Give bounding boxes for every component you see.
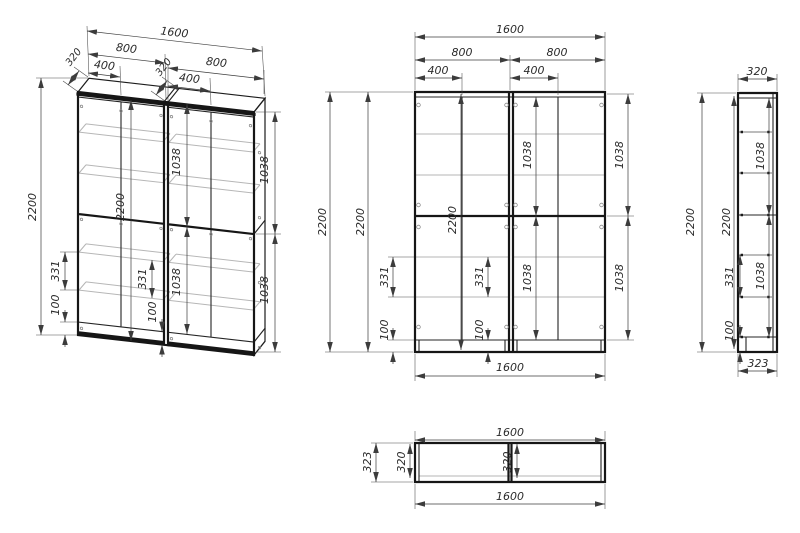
dim-label: 1600 xyxy=(496,361,524,374)
dim-label: 1038 xyxy=(170,268,183,296)
dim-label: 400 xyxy=(93,58,115,73)
dim-label: 320 xyxy=(395,452,408,473)
dim-label: 320 xyxy=(747,65,768,78)
dim-label: 800 xyxy=(115,41,137,56)
dim-label: 800 xyxy=(452,46,473,59)
dim-label: 1600 xyxy=(496,23,524,36)
dim-label: 400 xyxy=(178,71,200,86)
dim-label: 331 xyxy=(136,269,149,290)
dim-label: 100 xyxy=(146,302,159,323)
dim-label: 2200 xyxy=(316,208,329,236)
dim-label: 1038 xyxy=(754,142,767,170)
dim-label: 1600 xyxy=(496,426,524,439)
dim-label: 1038 xyxy=(258,276,271,304)
dim-label: 1600 xyxy=(496,490,524,503)
dim-label: 331 xyxy=(723,267,736,288)
dim-label: 400 xyxy=(524,64,545,77)
dim-label: 1038 xyxy=(521,141,534,169)
drawing-canvas: 1600 800 800 400 400 320 xyxy=(0,0,800,533)
dim-label: 331 xyxy=(378,267,391,288)
dim-label: 100 xyxy=(473,320,486,341)
dim-label: 2200 xyxy=(26,193,39,221)
dim-label: 1038 xyxy=(613,141,626,169)
dim-label: 2200 xyxy=(720,208,733,236)
dim-label: 1038 xyxy=(258,156,271,184)
dim-label: 2200 xyxy=(684,208,697,236)
dim-label: 1038 xyxy=(754,262,767,290)
dim-label: 331 xyxy=(49,261,62,282)
dim-label: 2200 xyxy=(354,208,367,236)
dim-label: 323 xyxy=(748,357,769,370)
dim-label: 100 xyxy=(378,320,391,341)
dim-label: 323 xyxy=(361,452,374,473)
dim-label: 1038 xyxy=(521,264,534,292)
dim-label: 2200 xyxy=(446,206,459,234)
dim-label: 400 xyxy=(428,64,449,77)
dim-label: 800 xyxy=(547,46,568,59)
technical-drawing-sheet: 1600 800 800 400 400 320 xyxy=(0,0,800,533)
dim-label: 100 xyxy=(723,321,736,342)
dim-label: 2200 xyxy=(114,193,127,221)
dim-label: 320 xyxy=(501,452,514,473)
dim-label: 331 xyxy=(473,267,486,288)
dim-label: 1038 xyxy=(170,148,183,176)
dim-label: 1038 xyxy=(613,264,626,292)
dim-label: 100 xyxy=(49,295,62,316)
dim-label: 800 xyxy=(205,55,227,70)
